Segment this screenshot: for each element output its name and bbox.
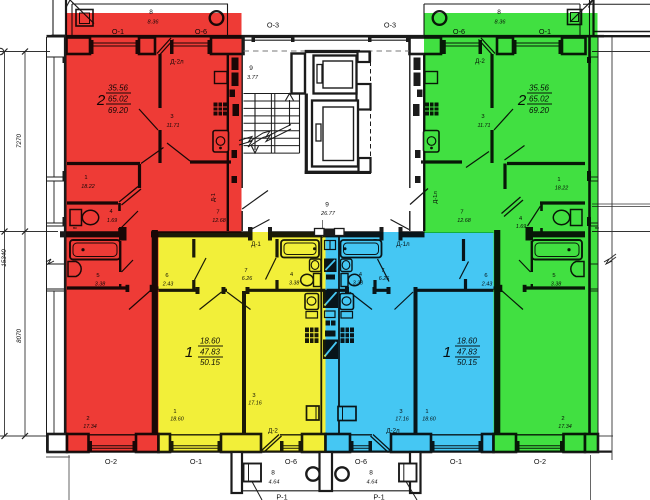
svg-text:8070: 8070	[16, 329, 23, 344]
svg-text:Р-1: Р-1	[373, 493, 384, 500]
svg-text:9: 9	[325, 202, 329, 209]
svg-text:3.77: 3.77	[247, 75, 259, 81]
svg-text:8: 8	[369, 470, 373, 477]
svg-text:О-1: О-1	[190, 457, 202, 466]
svg-text:15340: 15340	[1, 249, 8, 267]
svg-text:4.64: 4.64	[269, 480, 280, 486]
svg-text:О-6: О-6	[285, 457, 297, 466]
svg-text:О-2: О-2	[105, 457, 117, 466]
svg-text:9: 9	[249, 65, 253, 72]
svg-text:8: 8	[271, 470, 275, 477]
svg-text:4.64: 4.64	[367, 480, 378, 486]
svg-text:О-2: О-2	[534, 457, 546, 466]
svg-text:О-3: О-3	[267, 21, 279, 30]
svg-text:7270: 7270	[16, 134, 23, 149]
svg-text:О-3: О-3	[384, 21, 396, 30]
svg-text:О-6: О-6	[355, 457, 367, 466]
svg-text:О-1: О-1	[450, 457, 462, 466]
svg-text:Р-1: Р-1	[276, 493, 287, 500]
svg-text:26.77: 26.77	[320, 211, 336, 217]
